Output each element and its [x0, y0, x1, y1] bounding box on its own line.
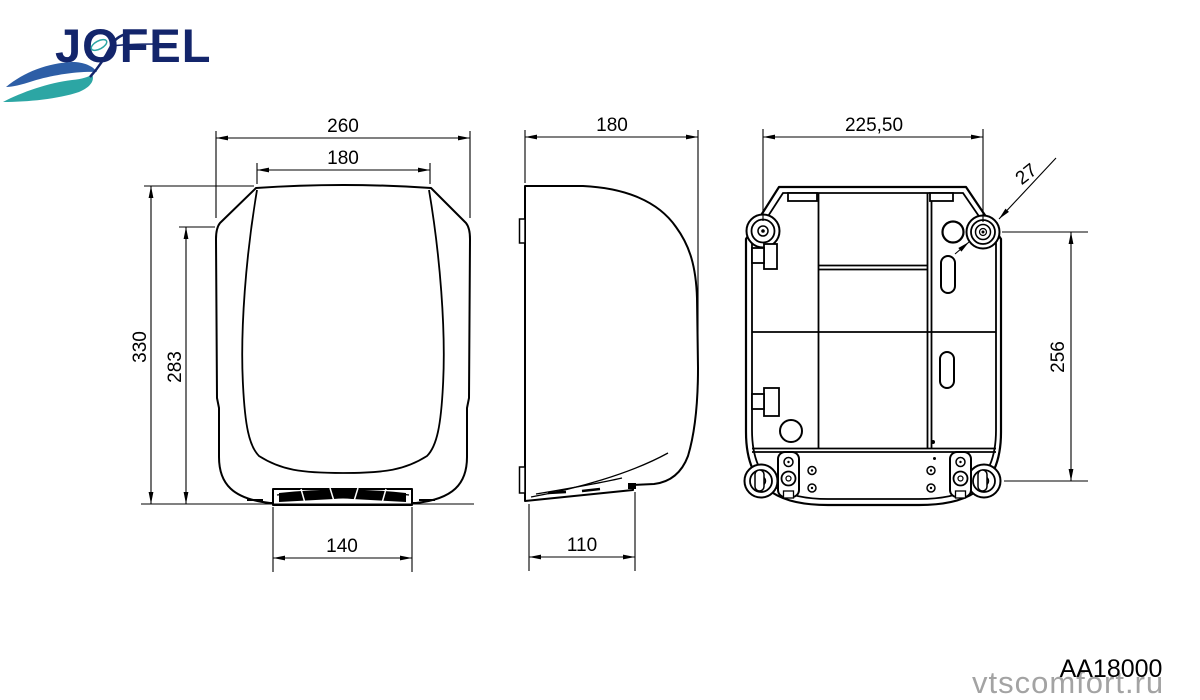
rear-view: 225,50 27 256 — [745, 115, 1089, 505]
front-body-outline — [216, 185, 470, 503]
logo-wave-teal — [3, 74, 93, 102]
side-wall-bracket-bottom — [520, 467, 526, 493]
dim-side-outlet-depth: 110 — [567, 535, 597, 556]
rear-top-notch-right — [930, 193, 953, 201]
model-code: AA18000 — [1060, 655, 1163, 683]
rear-top-notch-left — [788, 193, 817, 201]
drawing-canvas: JOFEL 260 180 — [0, 0, 1200, 700]
rear-slot-top — [941, 256, 955, 293]
side-outlet-dash-1 — [548, 492, 566, 493]
rear-drain-hole — [780, 420, 802, 442]
dim-front-overall-height: 330 — [130, 331, 151, 363]
dim-rear-hole-diameter: 27 — [1012, 160, 1042, 190]
technical-drawing-page: JOFEL 260 180 — [0, 0, 1200, 700]
side-outlet-step — [628, 483, 636, 489]
side-view: 180 110 — [520, 115, 699, 571]
rear-slot-bottom — [940, 352, 954, 388]
rear-cable-entry-hole — [943, 222, 964, 243]
dim-front-outlet-width: 140 — [326, 536, 358, 557]
dim-rear-hole-spacing-horizontal: 225,50 — [845, 115, 903, 136]
dim-side-depth: 180 — [596, 115, 628, 136]
dim-front-overall-width: 260 — [327, 116, 359, 137]
dim-front-top-width: 180 — [327, 148, 359, 169]
rear-keyhole-bracket-right — [950, 452, 971, 498]
jofel-logo: JOFEL — [3, 19, 211, 102]
side-wall-bracket-top — [520, 219, 526, 243]
side-body-outline — [525, 186, 698, 501]
rear-keyhole-bracket-left — [778, 452, 799, 498]
front-view: 260 180 330 283 140 — [130, 116, 474, 572]
dim-front-body-height: 283 — [165, 351, 186, 383]
rear-mount-boss-bottom-left — [745, 465, 778, 498]
dim-rear-hole-spacing-vertical: 256 — [1048, 341, 1069, 373]
rear-mount-boss-bottom-right — [968, 465, 1001, 498]
